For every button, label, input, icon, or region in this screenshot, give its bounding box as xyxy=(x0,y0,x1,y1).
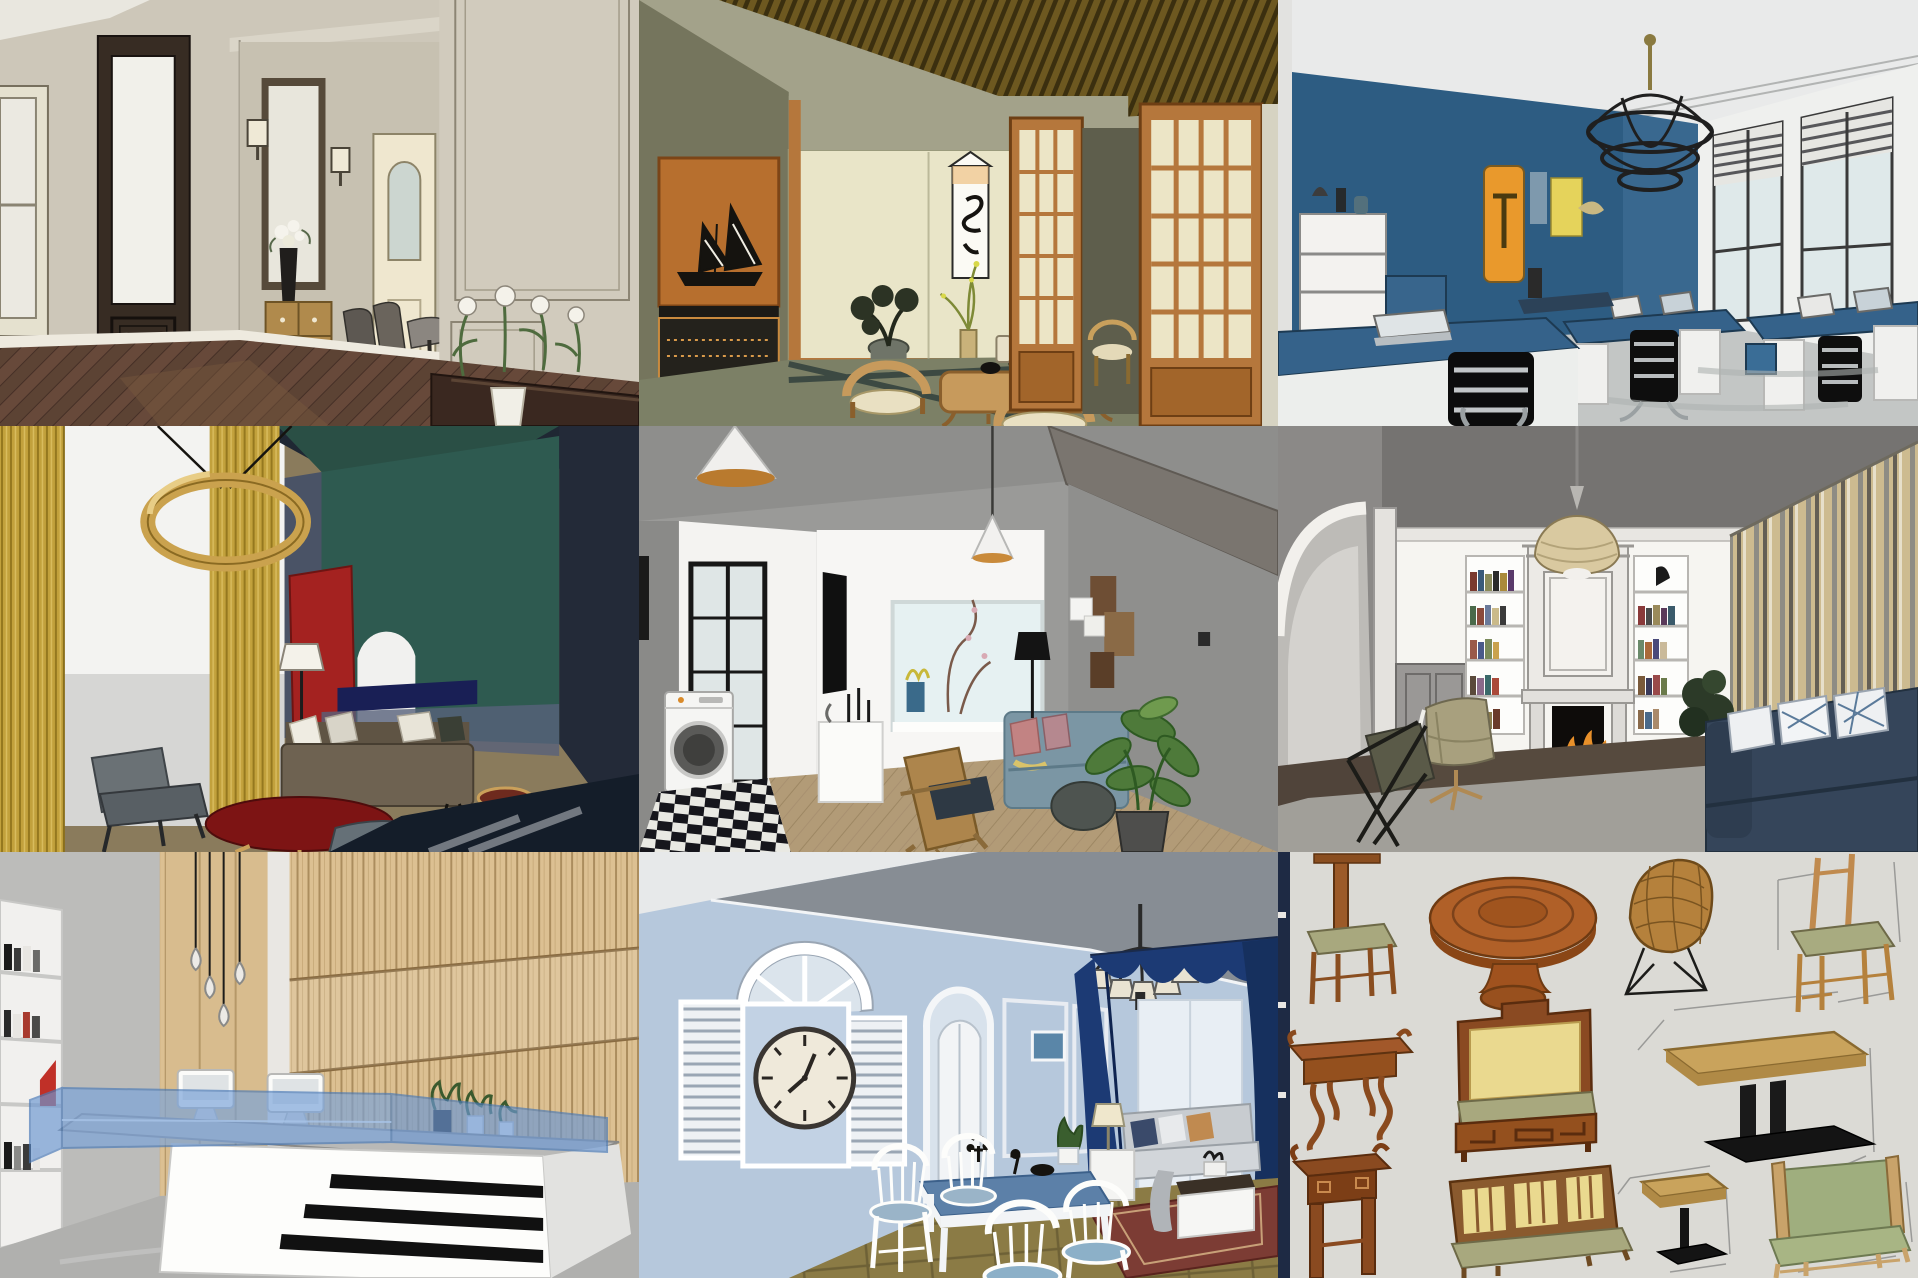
calligraphy-scroll xyxy=(951,152,991,278)
blue-office-render xyxy=(1278,0,1918,426)
room-beyond-doors xyxy=(1082,128,1140,414)
render-collage xyxy=(0,0,1918,1278)
tv xyxy=(823,572,847,694)
panel-blue-office[interactable] xyxy=(1278,0,1918,426)
color-block-lounge-render xyxy=(0,426,639,852)
washing-machine xyxy=(665,692,733,792)
fireplace xyxy=(1522,546,1634,776)
wall-picture xyxy=(1032,1032,1064,1060)
shoji-door-right xyxy=(1140,104,1278,426)
pouf xyxy=(1051,782,1115,830)
panel-furniture-collection[interactable] xyxy=(1278,852,1918,1278)
panel-reception-lobby[interactable] xyxy=(0,852,639,1278)
wall-switch xyxy=(1198,632,1210,646)
panel-classic-hallway[interactable] xyxy=(0,0,639,426)
window-left xyxy=(1714,122,1782,322)
fireplace-library-render xyxy=(1278,426,1918,852)
modern-apartment-render xyxy=(639,426,1278,852)
blue-dining-room-render xyxy=(639,852,1278,1278)
reception-lobby-render xyxy=(0,852,639,1278)
panel-blue-dining-room[interactable] xyxy=(639,852,1278,1278)
panel-japanese-tea-room[interactable] xyxy=(639,0,1278,426)
bookshelf xyxy=(0,900,62,1248)
office-chair xyxy=(1448,352,1534,426)
furniture-collection-render xyxy=(1278,852,1918,1278)
navy-sofa xyxy=(1706,688,1918,852)
japanese-tea-room-render xyxy=(639,0,1278,426)
arched-doorway xyxy=(927,990,991,1200)
window xyxy=(0,86,48,336)
shoji-door-left xyxy=(1010,118,1082,410)
panel-color-block-lounge[interactable] xyxy=(0,426,639,852)
alcove-ship-display xyxy=(659,158,779,388)
bookshelf-right xyxy=(1634,556,1688,734)
panel-modern-apartment[interactable] xyxy=(639,426,1278,852)
right-wall-paneling xyxy=(439,0,639,426)
panel-fireplace-library[interactable] xyxy=(1278,426,1918,852)
classic-hallway-render xyxy=(0,0,639,426)
throne-bench xyxy=(1456,1000,1596,1162)
